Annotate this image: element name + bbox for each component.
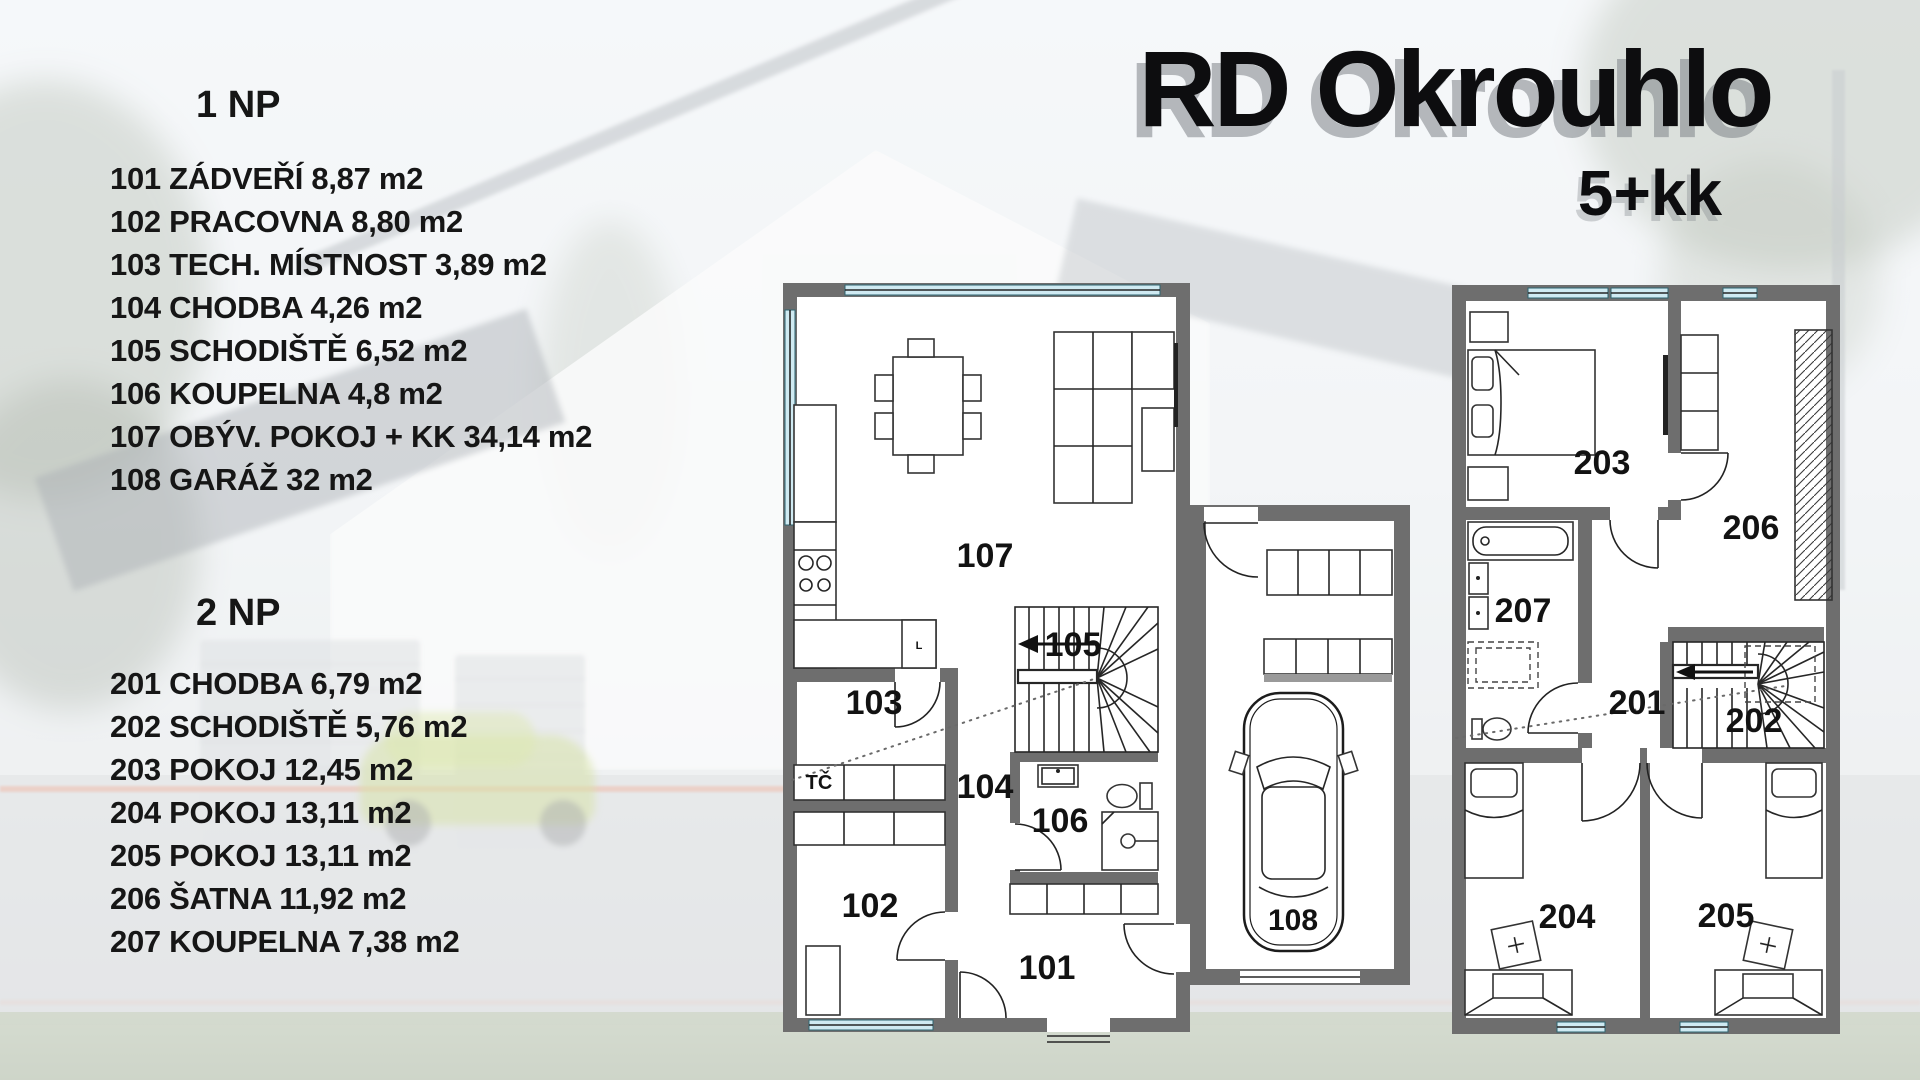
floorplan-2np: 203 206 207 201 202 204 205 — [1445, 280, 1845, 1040]
dresser-icon — [1715, 970, 1822, 1015]
room-label: 203 — [1574, 444, 1631, 482]
floor1-heading: 1 NP — [196, 84, 280, 127]
flyer-page: RD Okrouhlo 5+kk 1 NP 101 ZÁDVEŘÍ 8,87 m… — [0, 0, 1920, 1080]
room-label: 106 — [1032, 802, 1089, 840]
nightstand — [1470, 312, 1508, 342]
nightstand — [1468, 467, 1508, 500]
room-list-item: 203 POKOJ 12,45 m2 — [110, 748, 467, 791]
room-list-item: 104 CHODBA 4,26 m2 — [110, 286, 592, 329]
floor2-room-list: 201 CHODBA 6,79 m2 202 SCHODIŠTĚ 5,76 m2… — [110, 662, 467, 963]
room-list-item: 107 OBÝV. POKOJ + KK 34,14 m2 — [110, 415, 592, 458]
room-label: 105 — [1045, 626, 1102, 664]
tv-icon — [1663, 355, 1668, 435]
room-list-item: 106 KOUPELNA 4,8 m2 — [110, 372, 592, 415]
room-list-item: 206 ŠATNA 11,92 m2 — [110, 877, 467, 920]
room-label: 205 — [1698, 897, 1755, 935]
chair-icon — [1491, 921, 1540, 969]
toilet-icon — [1472, 718, 1511, 740]
room-label: 202 — [1726, 702, 1783, 740]
desk-102 — [806, 946, 840, 1015]
heat-pump-label: TČ — [806, 770, 833, 794]
sink-label: L — [916, 640, 923, 652]
page-title: RD Okrouhlo — [1105, 26, 1805, 151]
room-list-item: 207 KOUPELNA 7,38 m2 — [110, 920, 467, 963]
clothes-rack — [1795, 330, 1832, 600]
room-label: 102 — [842, 887, 899, 925]
room-label: 206 — [1723, 509, 1780, 547]
room-list-item: 204 POKOJ 13,11 m2 — [110, 791, 467, 834]
room-label: 104 — [957, 768, 1014, 806]
room-list-item: 101 ZÁDVEŘÍ 8,87 m2 — [110, 157, 592, 200]
room-list-item: 102 PRACOVNA 8,80 m2 — [110, 200, 592, 243]
room-list-item: 108 GARÁŽ 32 m2 — [110, 458, 592, 501]
toilet-icon — [1107, 783, 1152, 809]
room-label: 107 — [957, 537, 1014, 575]
floorplan-1np: 107 103 105 104 106 102 101 108 TČ L — [770, 275, 1420, 1065]
room-list-item: 103 TECH. MÍSTNOST 3,89 m2 — [110, 243, 592, 286]
entry-closet — [1010, 884, 1158, 914]
side-table — [1142, 408, 1174, 471]
floor2-heading: 2 NP — [196, 592, 280, 635]
room-label: 204 — [1539, 898, 1596, 936]
room-list-item: 201 CHODBA 6,79 m2 — [110, 662, 467, 705]
room-label: 103 — [846, 684, 903, 722]
room-label: 101 — [1019, 949, 1076, 987]
floor1-room-list: 101 ZÁDVEŘÍ 8,87 m2 102 PRACOVNA 8,80 m2… — [110, 157, 592, 501]
page-subtitle: 5+kk — [1555, 156, 1745, 230]
room-list-item: 202 SCHODIŠTĚ 5,76 m2 — [110, 705, 467, 748]
tv-icon — [1174, 343, 1178, 427]
room-list-item: 205 POKOJ 13,11 m2 — [110, 834, 467, 877]
room-list-item: 105 SCHODIŠTĚ 6,52 m2 — [110, 329, 592, 372]
dresser-icon — [1465, 970, 1572, 1015]
room-label: 108 — [1268, 904, 1318, 937]
room-label: 201 — [1609, 684, 1666, 722]
room-label: 207 — [1495, 592, 1552, 630]
shower-icon — [1102, 812, 1158, 870]
